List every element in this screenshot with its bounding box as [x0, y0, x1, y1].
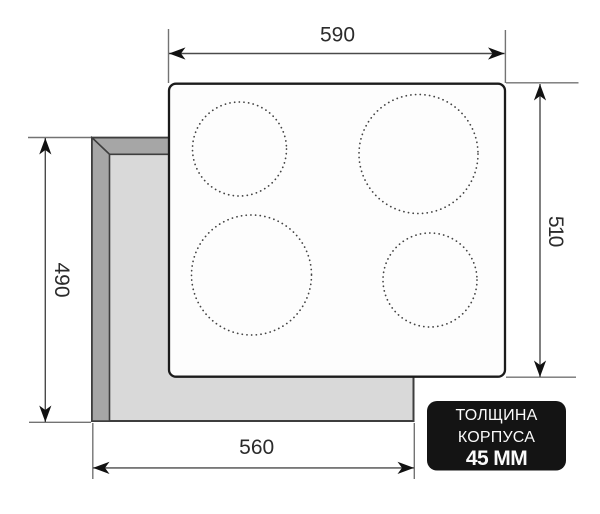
svg-text:ТОЛЩИНА: ТОЛЩИНА	[456, 407, 538, 424]
svg-text:КОРПУСА: КОРПУСА	[458, 429, 535, 446]
svg-text:490: 490	[50, 262, 73, 297]
svg-text:510: 510	[544, 216, 567, 247]
svg-text:560: 560	[239, 436, 274, 459]
svg-text:590: 590	[320, 24, 355, 47]
svg-text:45 ММ: 45 ММ	[466, 447, 527, 470]
